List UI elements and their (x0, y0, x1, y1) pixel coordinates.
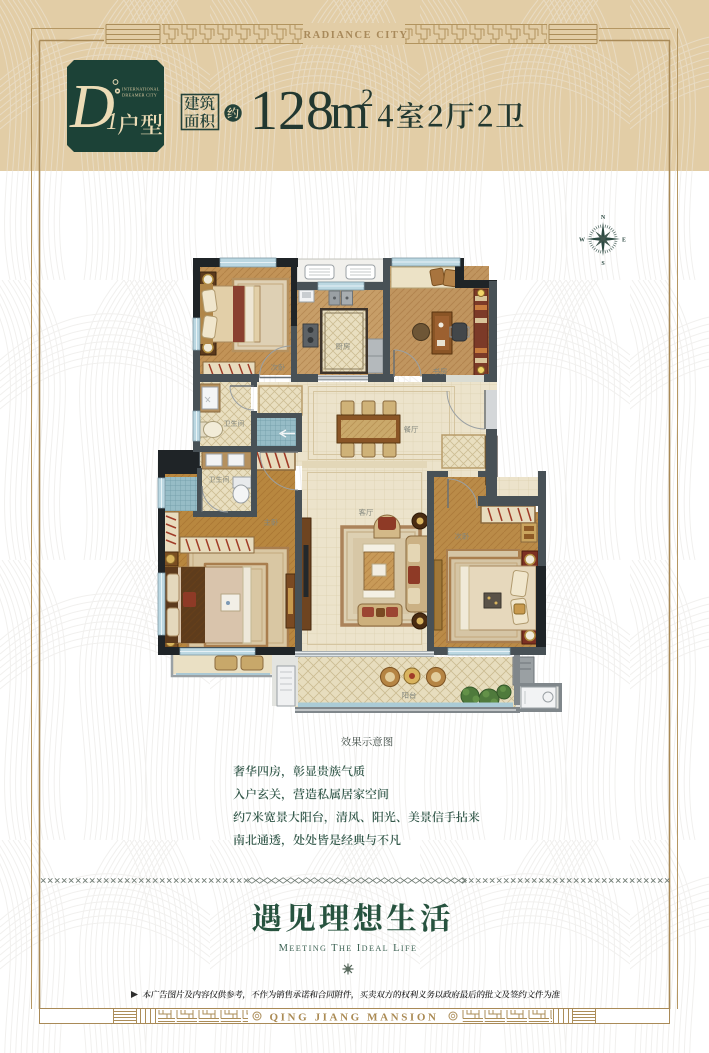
svg-text:RADIANCE CITY: RADIANCE CITY (304, 30, 409, 41)
svg-text:W: W (579, 238, 585, 244)
svg-text:E: E (622, 238, 626, 244)
svg-text:1: 1 (106, 109, 118, 135)
svg-text:128: 128 (250, 80, 334, 142)
svg-text:MEETING THE IDEAL LIFE: MEETING THE IDEAL LIFE (279, 943, 418, 954)
svg-text:N: N (601, 215, 606, 221)
svg-text:2: 2 (361, 85, 374, 112)
svg-text:DREAMER CITY: DREAMER CITY (122, 93, 157, 98)
svg-text:INTERNATIONAL: INTERNATIONAL (122, 87, 160, 92)
svg-text:QING JIANG MANSION: QING JIANG MANSION (269, 1012, 438, 1024)
